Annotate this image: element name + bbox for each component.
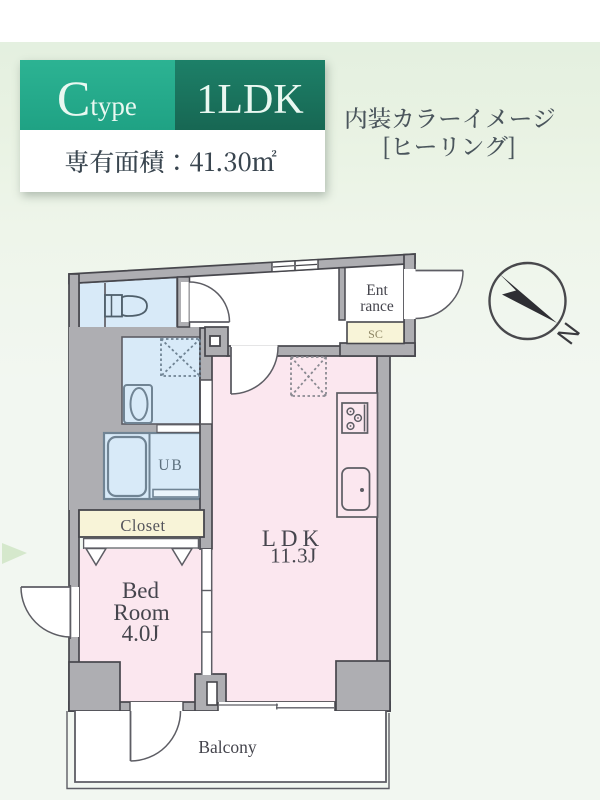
svg-text:SC: SC [368, 327, 383, 341]
svg-text:4.0J: 4.0J [122, 621, 160, 646]
svg-text:Ctype: Ctype [57, 70, 137, 126]
svg-text:11.3J: 11.3J [270, 544, 317, 568]
svg-text:rance: rance [360, 298, 394, 315]
svg-text:Closet: Closet [120, 516, 165, 535]
svg-text:Ent: Ent [366, 282, 388, 299]
svg-text:1LDK: 1LDK [196, 77, 303, 123]
svg-text:Balcony: Balcony [198, 737, 257, 757]
svg-text:UB: UB [158, 457, 184, 474]
